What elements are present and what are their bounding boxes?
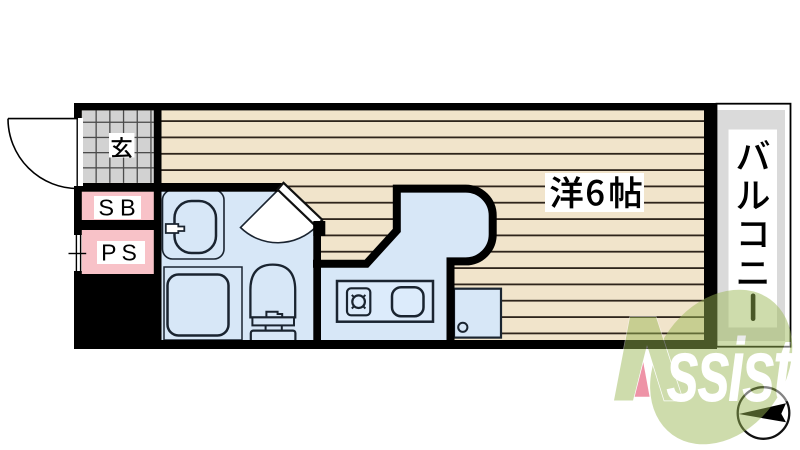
svg-text:PS: PS [101,240,142,266]
svg-text:ssist: ssist [666,320,796,421]
svg-text:SB: SB [98,195,141,221]
